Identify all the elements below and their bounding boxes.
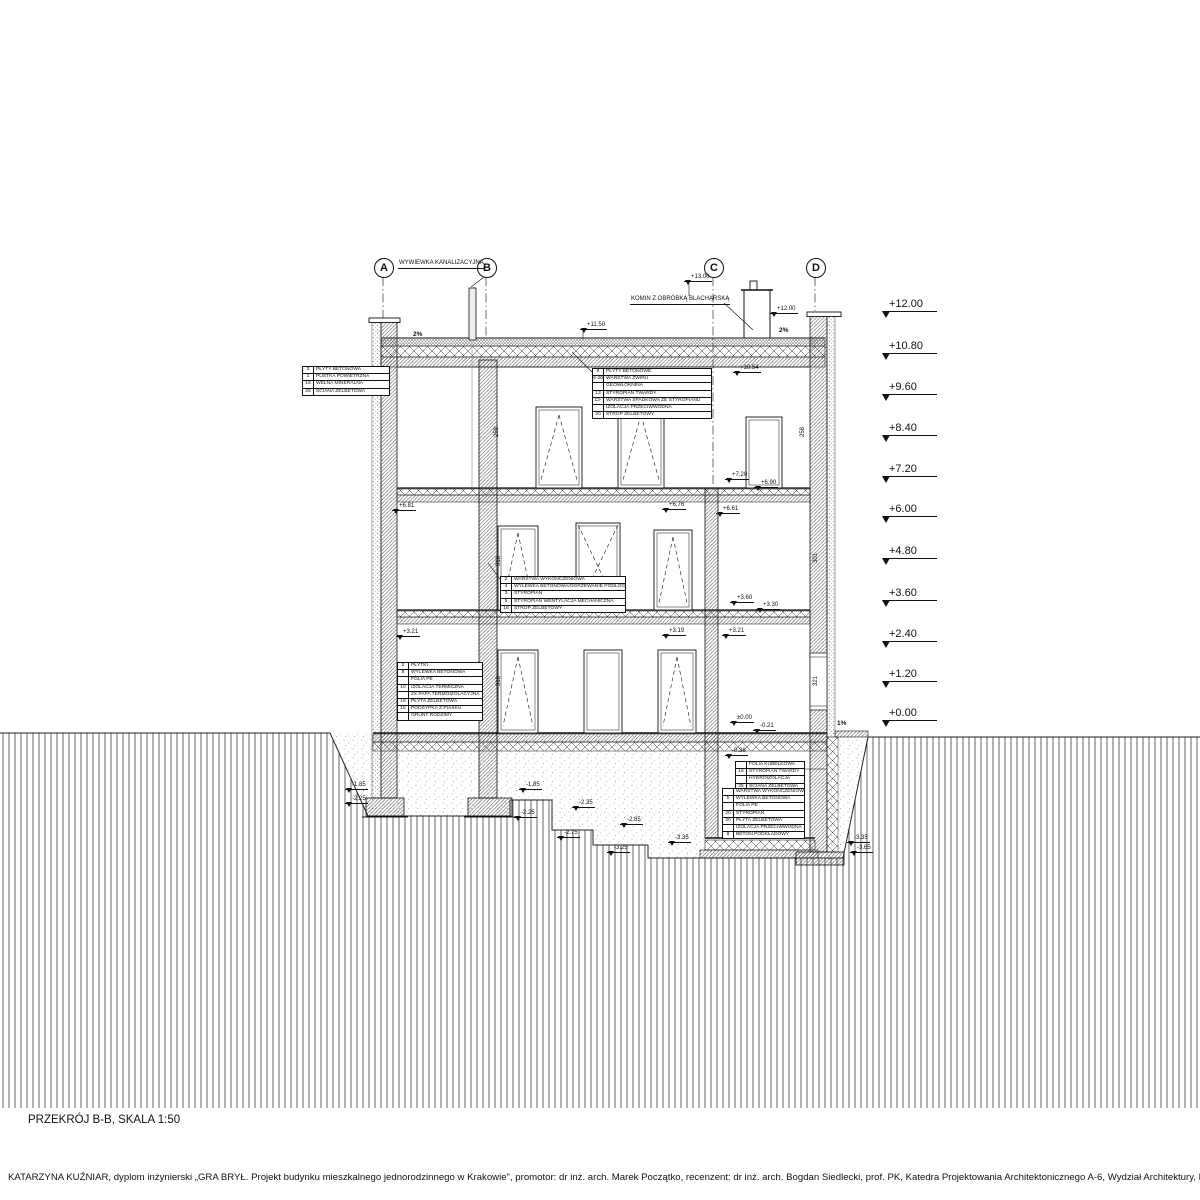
table-row: 16STYROPIAN TWARDY [736,768,804,775]
level-mark: -3.35 [668,835,691,843]
door [746,417,782,488]
level-mark: +6.76 [662,502,686,510]
axis-bubble-a: A [374,258,394,278]
level-mark: +3.21 [396,629,420,637]
table-row: 13-24WARSTWA SPADKOWA ZE STYROPIANU [593,397,711,404]
table-row: 18STROP ŻELBETOWY [501,605,625,612]
level-mark: -2.85 [620,817,643,825]
level-mark: -3.35 [847,835,870,843]
table-row: 5WYLEWKA BETONOWA [723,795,804,802]
table-row: 13STYROPIAN TWARDY [593,390,711,397]
axis-label: C [710,262,718,274]
level-mark: -0.21 [753,723,776,731]
left-parapet-cap [369,318,400,323]
level-mark: -2.75 [557,830,580,838]
roof-layers-table: 8PŁYTY BETONOWE 8-20WARSTWA ŻWIRU GEOWŁÓ… [592,368,712,419]
table-row: 18PŁYTA ŻELBETOWA [398,698,482,705]
elevation-mark: +6.00 [883,503,937,517]
window [536,407,582,488]
level-mark: +6.61 [716,506,740,514]
table-row: HYDROIZOLACJA [736,775,804,782]
table-row: 16WEŁNA MINERALNA [303,380,389,387]
table-row: FOLIA KUBEŁKOWA [736,762,804,768]
level-mark: +10.54 [733,365,761,373]
axis-bubble-d: D [806,258,826,278]
second-floor-slab [397,488,810,502]
table-row: IZOLACJA PRZECIWWODNA [593,404,711,411]
table-row: FOLIA PE [723,802,804,809]
ground-slab [373,733,827,751]
level-mark: +3.60 [730,595,754,603]
level-mark: +6.90 [754,480,778,488]
basement-floor-layers-table: WARSTWA WYKOŃCZENIOWA 5WYLEWKA BETONOWA … [722,788,805,839]
table-row: 3STYROPIAN [501,590,625,597]
axis-label: A [380,262,388,274]
elevation-mark: +10.80 [883,340,937,354]
level-mark: +3.21 [722,628,746,636]
elevation-mark: +7.20 [883,463,937,477]
elevation-mark: +3.60 [883,587,937,601]
table-row: 8-20WARSTWA ŻWIRU [593,375,711,382]
table-row: IZOLACJA PRZECIWWODNA [723,824,804,831]
table-row: 25ŚCIANA ŻELBETOWA [303,388,389,395]
level-mark: -1.85 [519,782,542,790]
level-mark: -1.85 [345,782,368,790]
slope-label: 2% [779,327,788,334]
table-row: 4WYLEWKA BETONOWA/OGRZEWANIE PODŁOGOWE [501,583,625,590]
column-b [479,360,497,798]
level-mark: -2.25 [514,810,537,818]
level-mark: +11.50 [580,322,607,330]
elevation-mark: +8.40 [883,422,937,436]
table-row: 5STYROPIAN WENTYLACJA MECHANICZNA [501,598,625,605]
right-wall-insulation [827,316,835,737]
elevation-mark: +12.00 [883,298,937,312]
table-row: 10IZOLACJA TERMICZNA [398,684,482,691]
dimension: 301 [813,553,819,563]
right-parapet-cap [807,312,841,317]
level-mark: +3.19 [662,628,686,636]
table-row: 20STROP ŻELBETOWY [593,411,711,418]
table-row: 1PUSTKA POWIETRZNA [303,373,389,380]
elevation-mark: +4.80 [883,545,937,559]
wall-layers-table: 3PŁYTY BETONOWA 1PUSTKA POWIETRZNA 16WEŁ… [302,366,390,396]
right-basement-insulation [827,737,838,852]
section-title: PRZEKRÓJ B-B, SKALA 1:50 [28,1114,180,1126]
window [654,530,692,610]
dimension: 258 [800,427,806,437]
axis-label: D [812,262,820,274]
ground-layers-table: 2PŁYTKI 8WYLEWKA BETONOWA FOLIA PE 10IZO… [397,662,483,721]
elevation-mark: +1.20 [883,668,937,682]
right-wall [810,316,827,852]
elevation-mark: +9.60 [883,381,937,395]
exterior-paving [835,731,868,737]
level-mark: -2.35 [572,800,595,808]
table-row: GRUNT RODZIMY [398,712,482,719]
chimney [741,281,773,338]
credit-line: KATARZYNA KUŹNIAR, dyplom inżynierski „G… [8,1172,1200,1183]
slope-label: 1% [837,720,846,727]
door [584,650,622,733]
windows [498,407,827,733]
table-row: 15PODSYPKA Z PIASKU [398,705,482,712]
level-mark: +3.30 [756,602,780,610]
window [498,650,538,733]
floor-layers-table: 2WARSTWA WYKOŃCZENIOWA 4WYLEWKA BETONOWA… [500,576,626,613]
table-row: 30PŁYTA ŻELBETOWA [723,817,804,824]
table-row: 8BETON PODKŁADOWY [723,831,804,838]
window [658,650,696,733]
slope-label: 2% [413,331,422,338]
level-mark: -2.25 [345,796,368,804]
dimension: 318 [496,556,502,566]
level-mark: +7.20 [725,472,749,480]
level-mark: +13.00 [684,274,712,282]
level-mark: -0.36 [725,748,748,756]
table-row: WARSTWA WYKOŃCZENIOWA [723,789,804,795]
level-mark: -3.65 [850,845,873,853]
elevation-mark: +2.40 [883,628,937,642]
dimension: 321 [813,676,819,686]
table-row: FOLIA PE [398,676,482,683]
roof-slab [381,338,825,367]
level-mark: -3.25 [607,845,630,853]
elevation-mark: +0.00 [883,707,937,721]
vent-pipe [469,288,476,487]
vent-callout: WYWIEWKA KANALIZACYJNA [398,260,485,269]
wall-c [705,488,718,838]
table-row: 8WYLEWKA BETONOWA [398,669,482,676]
dimension: 258 [494,427,500,437]
level-mark: ±0.00 [730,715,754,723]
dimension: 318 [496,676,502,686]
basement-wall-layers-table: FOLIA KUBEŁKOWA 16STYROPIAN TWARDY HYDRO… [735,761,805,791]
table-row: GEOWŁÓKNINA [593,382,711,389]
level-mark: +12.00 [770,306,798,314]
section-drawing: A B C D +12.00 +10.80 +9.60 +8.40 +7.20 … [0,0,1200,1200]
table-row: 20STYROPIAN [723,810,804,817]
table-row: 2X PAPA TERMOIZOLACYJNA [398,691,482,698]
chimney-callout: KOMIN Z OBRÓBKĄ BLACHARSKĄ [630,296,730,305]
level-mark: +6.81 [392,503,416,511]
